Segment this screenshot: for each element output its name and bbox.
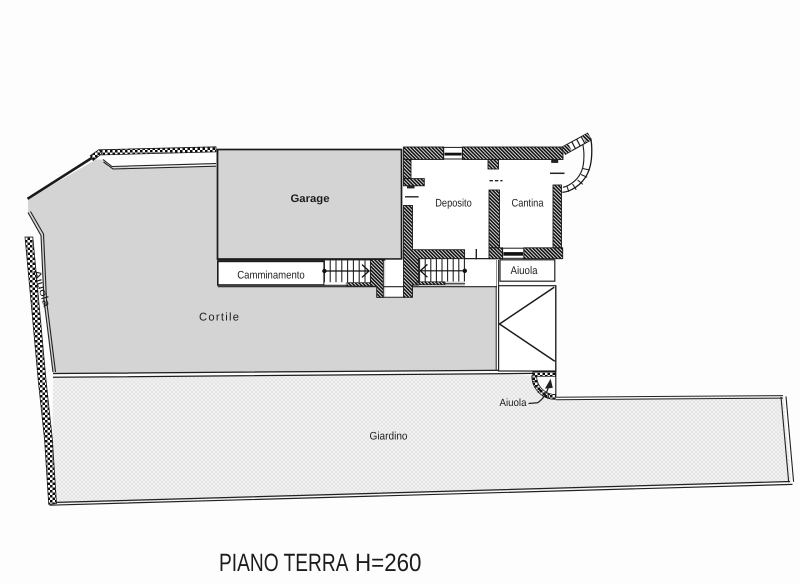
svg-text:H=260: H=260 [355,549,422,577]
svg-text:Aiuola: Aiuola [511,265,539,277]
svg-text:PIANO TERRA: PIANO TERRA [219,549,349,577]
svg-text:Garage: Garage [291,193,330,205]
svg-text:Cortile: Cortile [199,311,239,323]
svg-text:Giardino: Giardino [370,431,408,443]
svg-text:Deposito: Deposito [435,198,472,210]
svg-text:Cantina: Cantina [512,198,545,210]
svg-text:Camminamento: Camminamento [237,269,305,281]
svg-text:Aiuola: Aiuola [500,397,527,409]
